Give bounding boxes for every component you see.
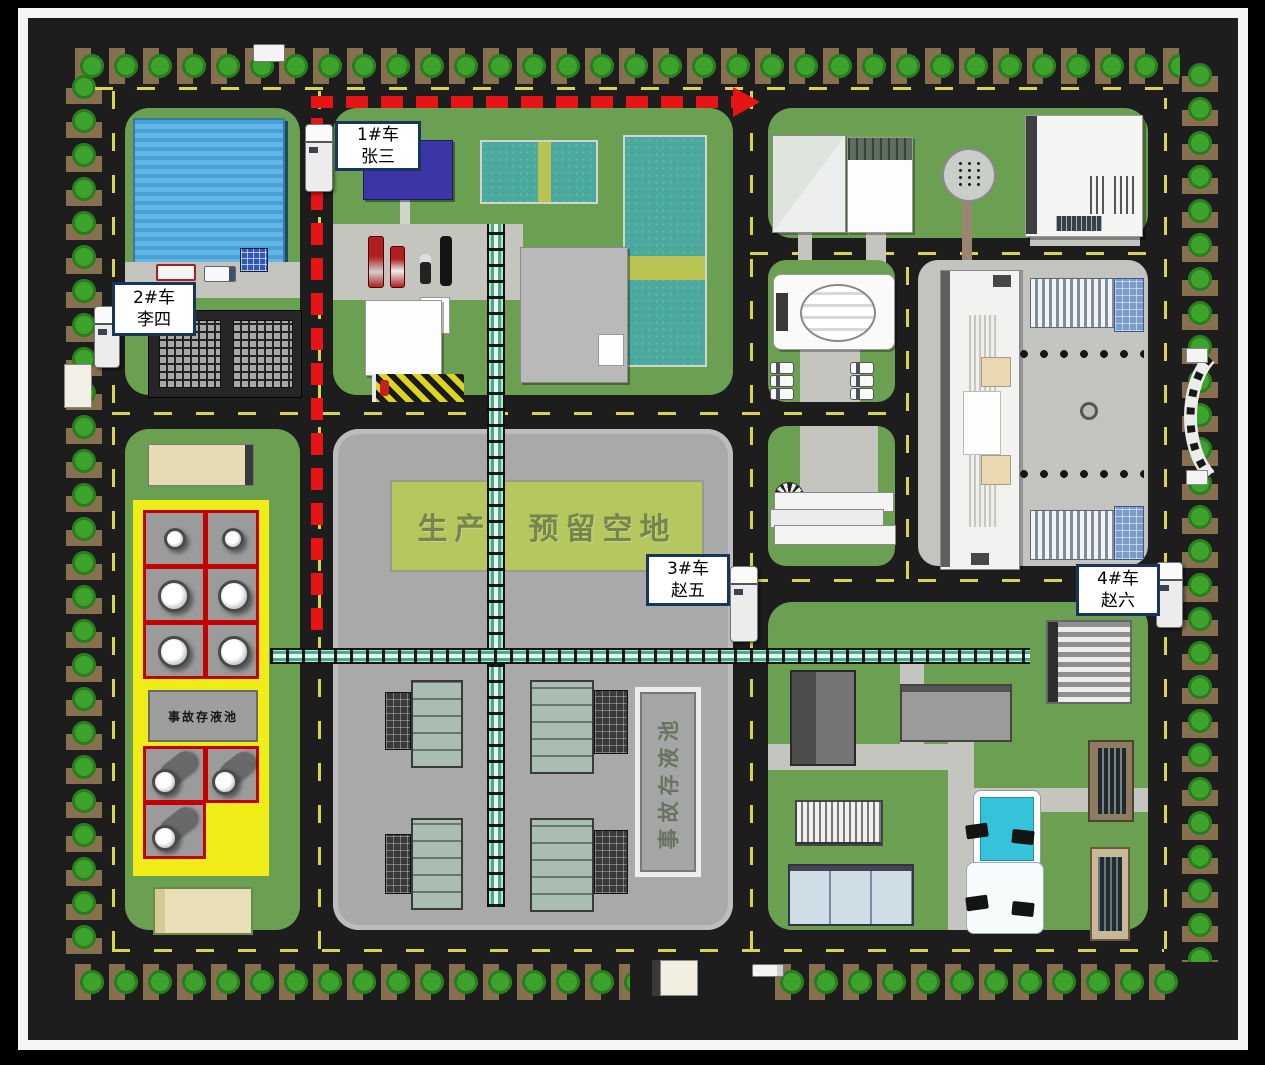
green-roof-band: [848, 138, 912, 160]
vehicle-4-label[interactable]: 4#车 赵六: [1076, 564, 1160, 616]
utility-vehicle-1: [420, 254, 431, 284]
rack-slats: [1098, 748, 1126, 814]
process-unit-4: [530, 818, 632, 912]
tree-row-bottom-right: [775, 964, 1180, 1000]
dome-ellipse-roof: [800, 284, 876, 342]
process-unit-3: [385, 818, 465, 910]
tall-office-core: [963, 391, 1001, 455]
parked-car: [770, 362, 794, 374]
road-line-center: [750, 87, 753, 949]
gate-post-bottom: [1186, 470, 1208, 485]
small-solar-panel: [240, 248, 268, 272]
vehicle-4-truck[interactable]: [1156, 562, 1183, 628]
accident-pool-production: 事故存液池: [635, 687, 701, 877]
clean-pool-water: [980, 797, 1034, 861]
parked-car: [850, 362, 874, 374]
vehicle-3-label[interactable]: 3#车 赵五: [646, 554, 730, 606]
horizontal-tank-head: [152, 769, 178, 795]
small-truck-white: [204, 266, 236, 282]
storage-tank-large: [218, 636, 250, 668]
accident-pool-label: 事故存液池: [653, 715, 683, 850]
tree-row-top: [75, 48, 1180, 84]
tall-office-vent-bottom: [971, 553, 989, 565]
admin-stem-3: [962, 194, 972, 266]
tank-farm-dike: 事故存液池: [133, 500, 269, 876]
light-blue-building: [788, 864, 914, 926]
carport-south-solar: [1114, 506, 1144, 560]
dock-shed: [598, 334, 624, 366]
accident-pool-tank-farm: 事故存液池: [148, 690, 258, 742]
solar-panel-right: [233, 320, 293, 388]
storage-tank-small: [222, 528, 244, 550]
vehicle-id: 2#车: [115, 287, 193, 309]
vehicle-2-label[interactable]: 2#车 李四: [112, 282, 196, 336]
vehicle-driver: 张三: [338, 146, 418, 168]
vehicle-id: 4#车: [1079, 568, 1157, 590]
tall-office-pad-1: [981, 357, 1011, 387]
accident-pool-label: 事故存液池: [168, 708, 238, 725]
route-arrow: [733, 87, 760, 117]
horizontal-tank-head: [152, 825, 178, 851]
vehicle-3-truck[interactable]: [730, 566, 758, 642]
tan-warehouse-north: [148, 444, 254, 486]
road-line-right: [1164, 98, 1167, 949]
fire-truck-2: [390, 246, 405, 288]
tree-dots-south: [1020, 470, 1144, 478]
tan-warehouse-south: [153, 887, 253, 935]
substation-core: [1098, 857, 1122, 931]
green-top-building: [847, 137, 913, 233]
south-gate-truck: [752, 964, 784, 977]
tank-cell: [205, 566, 259, 623]
tree-dots-north: [1020, 350, 1144, 358]
water-basin-long: [623, 135, 707, 367]
tank-cell: [143, 746, 206, 803]
tall-office-vent-top: [993, 275, 1011, 287]
storage-tank-large: [158, 580, 190, 612]
basin-band: [625, 256, 705, 280]
flagpole-roundabout: [1080, 402, 1098, 420]
dome-dark-block: [776, 293, 788, 331]
process-unit-2: [530, 680, 632, 774]
road-line-top: [95, 87, 1178, 90]
north-edge-truck: [253, 44, 285, 62]
road-line-right-upper: [750, 252, 1164, 255]
west-gatehouse: [64, 364, 92, 408]
tank-cell: [143, 510, 206, 567]
tank-cell: [143, 802, 206, 859]
tall-office-building: [940, 270, 1020, 570]
transformer: [1011, 901, 1034, 917]
unit-equipment: [385, 692, 411, 750]
vehicle-id: 3#车: [649, 558, 727, 580]
unit-equipment: [594, 830, 628, 894]
blue-roof-warehouse: [133, 118, 285, 266]
vehicle-id: 1#车: [338, 124, 418, 146]
map-frame: 事故存液池 生产 预留空地 事故存液池: [18, 8, 1248, 1050]
carport-north: [1030, 278, 1116, 328]
road-line-bottom: [112, 949, 1164, 952]
dark-wing: [792, 672, 816, 764]
parked-car: [770, 375, 794, 387]
parked-car: [850, 388, 874, 400]
tank-cell: [143, 622, 206, 679]
parked-car: [850, 375, 874, 387]
carport-north-solar: [1114, 278, 1144, 332]
road-line-inner-right: [906, 252, 909, 579]
office-entrance-stairs: [1056, 216, 1102, 231]
office-window-strip-1: [1090, 176, 1104, 214]
storage-tank-small: [164, 528, 186, 550]
storage-tank-large: [218, 580, 250, 612]
process-unit-1: [385, 680, 465, 768]
vehicle-driver: 李四: [115, 309, 193, 331]
tank-cell: [205, 510, 259, 567]
white-office-building: [365, 300, 442, 376]
tank-cell: [205, 622, 259, 679]
unit-roof: [530, 680, 594, 774]
basin-divider: [538, 142, 551, 202]
tree-row-bottom-left: [75, 964, 630, 1000]
road-line-left: [112, 87, 115, 949]
gate-post-top: [1186, 348, 1208, 363]
transformer: [1011, 829, 1034, 845]
slab-building-3: [774, 525, 896, 545]
vehicle-driver: 赵六: [1079, 590, 1157, 612]
office-dark-wing: [1026, 116, 1037, 234]
vehicle-1-truck[interactable]: [305, 124, 333, 192]
vehicle-1-label[interactable]: 1#车 张三: [335, 121, 421, 171]
pipe-rack-building: [1088, 740, 1134, 822]
dark-utility-building: [790, 670, 856, 766]
pipe-rack-vertical: [487, 224, 505, 907]
tree-row-right: [1182, 58, 1218, 962]
pyramid-roof-kiosk: [772, 135, 846, 233]
south-gatehouse: [660, 960, 698, 996]
pipe-rack-horizontal: [270, 648, 1030, 664]
unit-roof: [411, 680, 463, 768]
small-truck-red: [156, 264, 196, 281]
round-pad-equipment: [956, 160, 982, 190]
main-office-building: [1025, 115, 1143, 237]
slab-walkway: [800, 426, 878, 494]
unit-equipment: [385, 834, 411, 894]
unit-roof: [530, 818, 594, 912]
horizontal-tank-head: [212, 769, 238, 795]
utility-vehicle-2: [440, 236, 452, 286]
unit-equipment: [594, 690, 628, 754]
tank-cell: [205, 746, 259, 803]
tree-row-left: [66, 70, 102, 958]
cooling-tower-building: [1046, 620, 1132, 704]
tall-office-pad-2: [981, 455, 1011, 485]
office-window-strip-2: [1114, 176, 1136, 214]
dome-building: [773, 274, 895, 350]
water-basin-small: [480, 140, 598, 204]
tall-office-dark-edge: [941, 271, 950, 567]
unit-roof: [411, 818, 463, 910]
route-path-horizontal: [311, 96, 735, 108]
vehicle-driver: 赵五: [649, 580, 727, 602]
east-gate-arch: [1178, 354, 1214, 480]
road-line-middle: [112, 412, 906, 415]
substation-building: [1090, 847, 1130, 941]
fire-truck-1: [368, 236, 384, 288]
parked-car: [770, 388, 794, 400]
carport-south: [1030, 510, 1116, 560]
fire-hydrant: [380, 380, 389, 396]
gray-storage-building: [900, 684, 1012, 742]
tank-cell: [143, 566, 206, 623]
round-pad: [942, 148, 996, 202]
factory-site-map: 事故存液池 生产 预留空地 事故存液池: [28, 18, 1238, 1040]
louvered-structure: [795, 800, 883, 846]
storage-tank-large: [158, 636, 190, 668]
